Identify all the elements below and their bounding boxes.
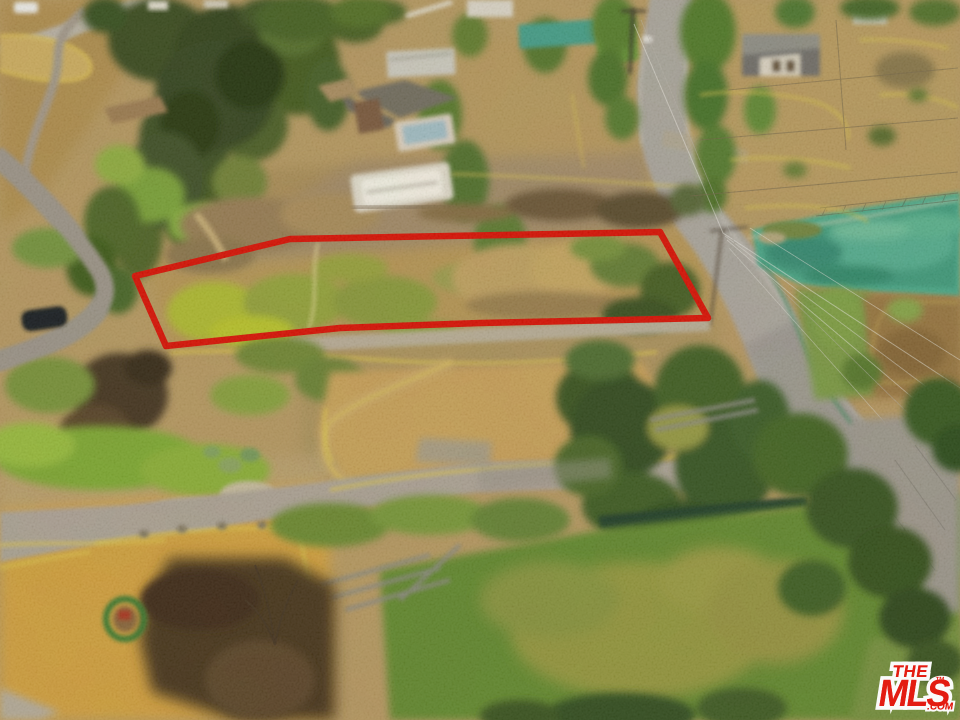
- svg-text:TM: TM: [935, 677, 945, 683]
- svg-text:.COM: .COM: [926, 702, 954, 713]
